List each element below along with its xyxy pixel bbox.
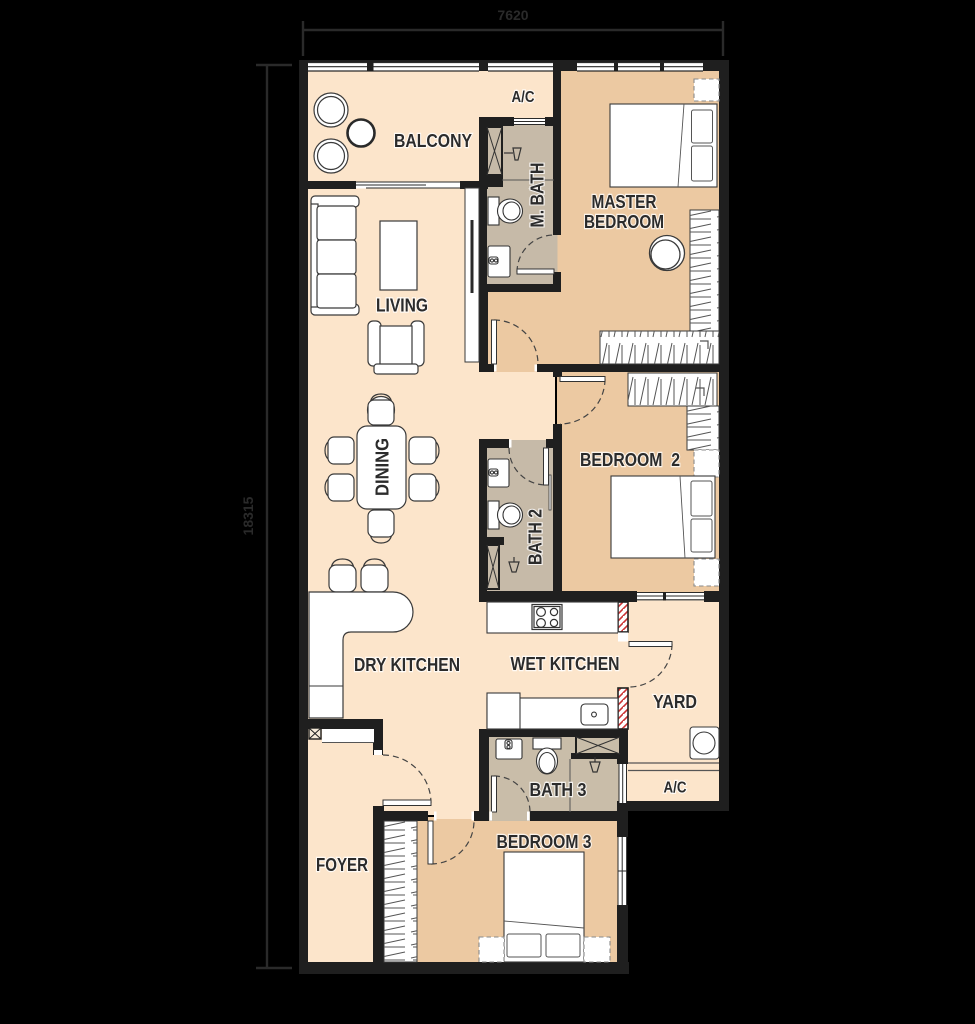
svg-text:BEDROOM 3: BEDROOM 3 [497, 831, 592, 852]
svg-text:A/C: A/C [512, 89, 535, 106]
svg-text:WET KITCHEN: WET KITCHEN [511, 653, 620, 674]
svg-text:DINING: DINING [372, 438, 393, 496]
svg-text:A/C: A/C [664, 780, 687, 797]
svg-text:BALCONY: BALCONY [394, 130, 473, 151]
svg-text:MASTER: MASTER [592, 191, 657, 212]
svg-text:DRY KITCHEN: DRY KITCHEN [354, 654, 460, 675]
svg-text:FOYER: FOYER [316, 854, 368, 875]
svg-text:BATH 3: BATH 3 [530, 779, 587, 800]
svg-text:18315: 18315 [240, 496, 256, 535]
svg-text:M. BATH: M. BATH [527, 163, 548, 228]
svg-text:YARD: YARD [653, 691, 697, 712]
svg-text:BEDROOM: BEDROOM [584, 211, 664, 232]
svg-text:BEDROOM 2: BEDROOM 2 [580, 449, 680, 470]
svg-text:7620: 7620 [497, 7, 528, 23]
svg-text:BATH 2: BATH 2 [525, 509, 546, 565]
svg-text:LIVING: LIVING [376, 295, 428, 316]
